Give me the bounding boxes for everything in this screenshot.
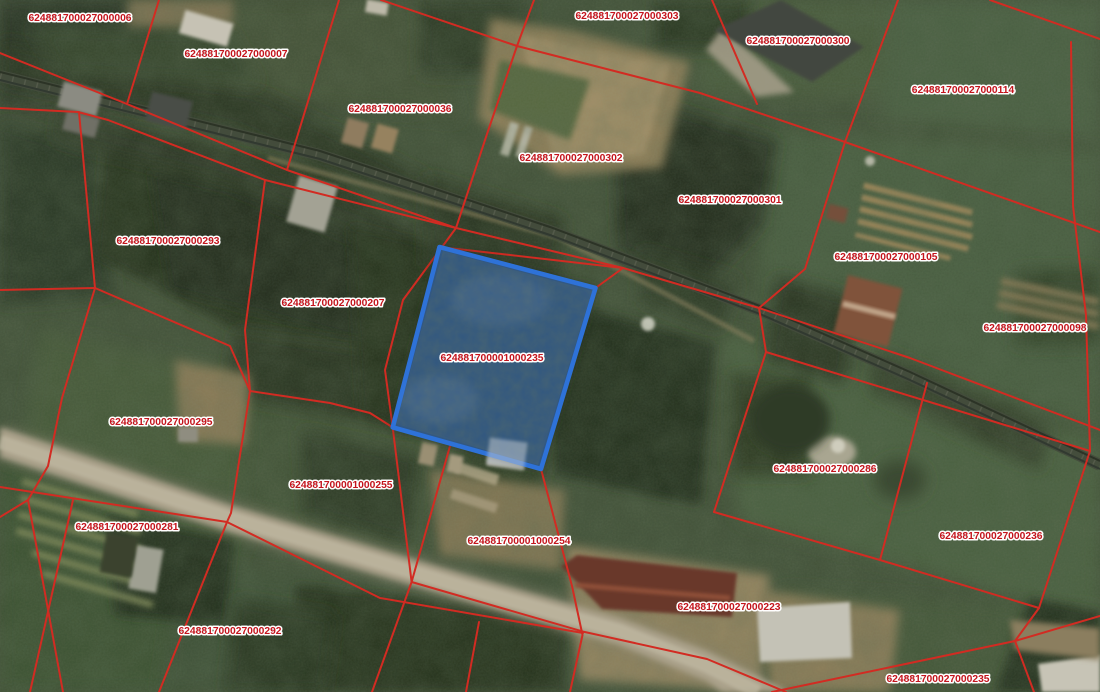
svg-text:624881700027000098: 624881700027000098: [983, 323, 1086, 334]
svg-text:624881700027000295: 624881700027000295: [109, 417, 212, 428]
svg-text:624881700027000235: 624881700027000235: [886, 674, 989, 685]
svg-text:624881700027000036: 624881700027000036: [348, 104, 451, 115]
svg-text:624881700027000236: 624881700027000236: [939, 531, 1042, 542]
svg-text:624881700027000292: 624881700027000292: [178, 626, 281, 637]
svg-text:624881700027000281: 624881700027000281: [75, 522, 178, 533]
svg-text:624881700027000293: 624881700027000293: [116, 236, 219, 247]
svg-text:624881700027000223: 624881700027000223: [677, 602, 780, 613]
svg-text:624881700001000235: 624881700001000235: [440, 353, 543, 364]
svg-text:624881700001000254: 624881700001000254: [467, 536, 570, 547]
svg-text:624881700027000301: 624881700027000301: [678, 195, 781, 206]
svg-text:624881700027000007: 624881700027000007: [184, 49, 287, 60]
svg-text:624881700027000006: 624881700027000006: [28, 13, 131, 24]
svg-text:624881700027000286: 624881700027000286: [773, 464, 876, 475]
svg-text:624881700027000114: 624881700027000114: [912, 85, 1015, 96]
svg-text:624881700027000300: 624881700027000300: [746, 36, 849, 47]
svg-text:624881700027000303: 624881700027000303: [575, 11, 678, 22]
svg-text:624881700001000255: 624881700001000255: [289, 480, 392, 491]
svg-text:624881700027000207: 624881700027000207: [281, 298, 384, 309]
svg-text:624881700027000105: 624881700027000105: [834, 252, 937, 263]
svg-text:624881700027000302: 624881700027000302: [519, 153, 622, 164]
